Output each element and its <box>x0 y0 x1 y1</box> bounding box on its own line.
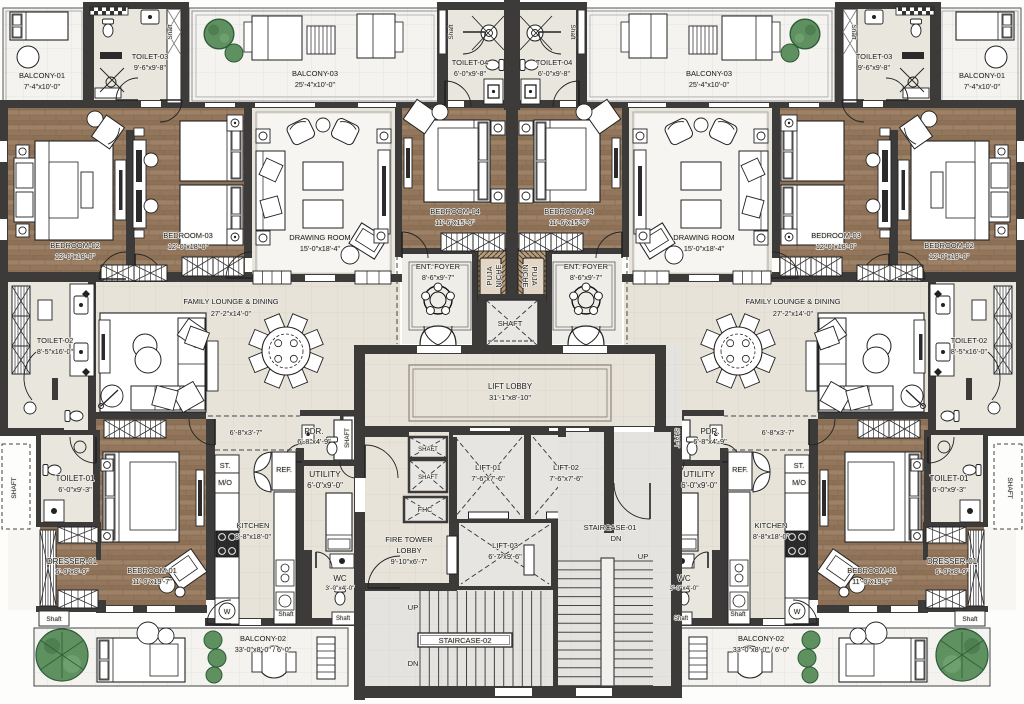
svg-text:Shaft: Shaft <box>278 611 293 618</box>
svg-text:BEDROOM-03: BEDROOM-03 <box>811 231 861 240</box>
svg-text:8'-8"x18'-0": 8'-8"x18'-0" <box>753 532 790 541</box>
svg-text:6'-8"x3'-7": 6'-8"x3'-7" <box>230 428 263 437</box>
svg-text:KITCHEN: KITCHEN <box>755 521 788 530</box>
svg-text:LIFT-03: LIFT-03 <box>492 541 518 550</box>
svg-text:DRESSER-01: DRESSER-01 <box>47 557 98 566</box>
svg-text:SHAFT: SHAFT <box>418 447 438 453</box>
svg-text:BALCONY-03: BALCONY-03 <box>292 69 338 78</box>
svg-text:ENT. FOYER: ENT. FOYER <box>416 262 461 271</box>
svg-text:DRESSER-01: DRESSER-01 <box>927 557 978 566</box>
svg-text:33'-0"x8'-0" / 6'-0": 33'-0"x8'-0" / 6'-0" <box>235 645 292 654</box>
svg-text:STAIRCASE-01: STAIRCASE-01 <box>584 523 637 532</box>
svg-text:11'-6"x15'-0": 11'-6"x15'-0" <box>549 218 589 227</box>
svg-text:UTILITY: UTILITY <box>309 469 341 479</box>
svg-text:Shaft: Shaft <box>962 616 977 623</box>
svg-text:BEDROOM-01: BEDROOM-01 <box>847 566 897 575</box>
svg-text:FAMILY LOUNGE & DINING: FAMILY LOUNGE & DINING <box>745 297 840 306</box>
svg-text:TOILET-04: TOILET-04 <box>452 58 489 67</box>
svg-text:9'-6"x9'-8": 9'-6"x9'-8" <box>134 63 167 72</box>
svg-text:TOILET-03: TOILET-03 <box>856 52 893 61</box>
svg-text:8'-8"x18'-0": 8'-8"x18'-0" <box>235 532 272 541</box>
svg-text:STAIRCASE-02: STAIRCASE-02 <box>439 636 492 645</box>
svg-text:25'-4"x10'-0": 25'-4"x10'-0" <box>689 80 730 89</box>
svg-text:SHAFT: SHAFT <box>11 477 18 498</box>
svg-text:11'-6"x15'-0": 11'-6"x15'-0" <box>435 218 475 227</box>
svg-text:WC: WC <box>333 574 347 583</box>
svg-text:LIFT-01: LIFT-01 <box>475 463 501 472</box>
svg-text:TOILET-02: TOILET-02 <box>951 336 988 345</box>
svg-text:DRAWING ROOM: DRAWING ROOM <box>673 233 734 242</box>
svg-text:6'-8"x4'-9": 6'-8"x4'-9" <box>297 437 331 446</box>
svg-text:6'-0"x9'-0": 6'-0"x9'-0" <box>307 481 343 490</box>
svg-text:FAMILY LOUNGE & DINING: FAMILY LOUNGE & DINING <box>183 297 278 306</box>
svg-text:8'-5"x16'-0": 8'-5"x16'-0" <box>37 347 74 356</box>
svg-text:NICHE: NICHE <box>521 264 530 287</box>
svg-text:SHAFT: SHAFT <box>1006 477 1013 498</box>
svg-text:6'-8"x4'-9": 6'-8"x4'-9" <box>693 437 727 446</box>
svg-text:25'-4"x10'-0": 25'-4"x10'-0" <box>295 80 336 89</box>
svg-text:W: W <box>224 609 231 616</box>
svg-text:3'-0"x4'-0": 3'-0"x4'-0" <box>669 585 699 592</box>
svg-text:SHAFT: SHAFT <box>345 428 351 448</box>
svg-text:BEDROOM-02: BEDROOM-02 <box>924 241 974 250</box>
svg-text:PUJA: PUJA <box>485 266 494 285</box>
svg-text:UP: UP <box>408 603 418 612</box>
svg-text:UTILITY: UTILITY <box>683 469 715 479</box>
svg-text:LIFT-02: LIFT-02 <box>553 463 579 472</box>
svg-text:3'-0"x4'-0": 3'-0"x4'-0" <box>325 585 355 592</box>
svg-text:ST.: ST. <box>220 461 231 470</box>
svg-text:12'-0"x18'-0": 12'-0"x18'-0" <box>929 252 970 261</box>
svg-text:BEDROOM-04: BEDROOM-04 <box>430 207 480 216</box>
svg-text:REF.: REF. <box>732 465 748 474</box>
svg-text:Shaft: Shaft <box>448 24 455 39</box>
svg-text:BEDROOM-01: BEDROOM-01 <box>127 566 177 575</box>
svg-text:7'-4"x10'-0": 7'-4"x10'-0" <box>964 82 1001 91</box>
svg-text:KITCHEN: KITCHEN <box>237 521 270 530</box>
svg-text:11'-0"x19'-7": 11'-0"x19'-7" <box>132 577 172 586</box>
svg-text:Shaft: Shaft <box>674 616 688 622</box>
svg-text:Shaft: Shaft <box>336 616 350 622</box>
svg-text:8'-6"x9'-7": 8'-6"x9'-7" <box>570 273 603 282</box>
svg-text:7'-4"x10'-0": 7'-4"x10'-0" <box>24 82 61 91</box>
svg-text:6'-8"x3'-7": 6'-8"x3'-7" <box>762 428 795 437</box>
svg-text:ST.: ST. <box>794 461 805 470</box>
svg-text:DRAWING ROOM: DRAWING ROOM <box>289 233 350 242</box>
svg-text:11'-0"x19'-7": 11'-0"x19'-7" <box>852 577 892 586</box>
svg-text:BALCONY-03: BALCONY-03 <box>686 69 732 78</box>
svg-text:6'-0"x9'-3": 6'-0"x9'-3" <box>932 485 966 494</box>
svg-text:27'-2"x14'-0": 27'-2"x14'-0" <box>773 309 814 318</box>
svg-text:LIFT LOBBY: LIFT LOBBY <box>488 382 533 391</box>
svg-text:6'-0"x8'-0": 6'-0"x8'-0" <box>935 567 969 576</box>
svg-text:9'-10"x6'-7": 9'-10"x6'-7" <box>391 557 428 566</box>
svg-text:SHAFT: SHAFT <box>673 428 679 448</box>
svg-text:SHAFT: SHAFT <box>498 319 523 328</box>
svg-text:WC: WC <box>677 574 691 583</box>
svg-text:BALCONY-01: BALCONY-01 <box>959 71 1005 80</box>
svg-text:7'-6"x7'-6": 7'-6"x7'-6" <box>471 474 505 483</box>
svg-text:BALCONY-02: BALCONY-02 <box>738 634 784 643</box>
svg-text:M/O: M/O <box>792 478 806 487</box>
svg-text:BEDROOM-02: BEDROOM-02 <box>50 241 100 250</box>
svg-text:Shaft: Shaft <box>730 611 745 618</box>
svg-text:FHC: FHC <box>418 507 432 514</box>
svg-text:8'-5"x16'-0": 8'-5"x16'-0" <box>951 347 988 356</box>
svg-text:BALCONY-02: BALCONY-02 <box>240 634 286 643</box>
svg-text:UP: UP <box>638 552 648 561</box>
svg-text:Shaft: Shaft <box>850 24 857 39</box>
svg-text:27'-2"x14'-0": 27'-2"x14'-0" <box>211 309 252 318</box>
svg-text:BEDROOM-03: BEDROOM-03 <box>163 231 213 240</box>
svg-text:9'-6"x9'-8": 9'-6"x9'-8" <box>858 63 891 72</box>
svg-text:12'-0"x18'-0": 12'-0"x18'-0" <box>168 242 209 251</box>
svg-text:15'-0"x18'-4": 15'-0"x18'-4" <box>300 244 341 253</box>
svg-text:6'-0"x9'-3": 6'-0"x9'-3" <box>58 485 92 494</box>
svg-text:8'-6"x9'-7": 8'-6"x9'-7" <box>422 273 455 282</box>
svg-text:BALCONY-01: BALCONY-01 <box>19 71 65 80</box>
svg-text:LOBBY: LOBBY <box>396 546 421 555</box>
svg-text:TOILET-01: TOILET-01 <box>56 474 96 483</box>
svg-text:TOILET-04: TOILET-04 <box>536 58 573 67</box>
svg-text:Shaft: Shaft <box>46 616 61 623</box>
svg-text:BEDROOM-04: BEDROOM-04 <box>544 207 594 216</box>
svg-text:DN: DN <box>611 534 622 543</box>
svg-text:M/O: M/O <box>218 478 232 487</box>
svg-text:15'-0"x18'-4": 15'-0"x18'-4" <box>684 244 725 253</box>
svg-text:31'-1"x8'-10": 31'-1"x8'-10" <box>489 393 531 402</box>
svg-text:TOILET-02: TOILET-02 <box>37 336 74 345</box>
svg-text:SHAFT: SHAFT <box>418 475 438 481</box>
svg-text:PDR.: PDR. <box>700 427 719 436</box>
svg-text:FIRE TOWER: FIRE TOWER <box>385 535 433 544</box>
svg-text:6'-0"x9'-0": 6'-0"x9'-0" <box>681 481 717 490</box>
svg-text:PUJA: PUJA <box>530 266 539 285</box>
svg-text:DN: DN <box>408 659 419 668</box>
svg-text:Shaft: Shaft <box>167 24 174 39</box>
svg-text:PDR.: PDR. <box>304 427 323 436</box>
svg-text:6'-0"x8'-0": 6'-0"x8'-0" <box>55 567 89 576</box>
svg-text:TOILET-03: TOILET-03 <box>132 52 169 61</box>
svg-text:NICHE: NICHE <box>494 264 503 287</box>
svg-text:6'-7"x9'-6": 6'-7"x9'-6" <box>488 552 522 561</box>
svg-text:REF.: REF. <box>276 465 292 474</box>
svg-text:ENT. FOYER: ENT. FOYER <box>564 262 609 271</box>
svg-text:6'-0"x9'-8": 6'-0"x9'-8" <box>538 69 571 78</box>
svg-text:7'-6"x7'-6": 7'-6"x7'-6" <box>549 474 583 483</box>
svg-text:12'-0"x18'-0": 12'-0"x18'-0" <box>816 242 857 251</box>
svg-text:Shaft: Shaft <box>569 24 576 39</box>
svg-text:12'-0"x18'-0": 12'-0"x18'-0" <box>55 252 96 261</box>
svg-text:TOILET-01: TOILET-01 <box>930 474 970 483</box>
svg-text:6'-0"x9'-8": 6'-0"x9'-8" <box>454 69 487 78</box>
svg-text:33'-0"x8'-0" / 6'-0": 33'-0"x8'-0" / 6'-0" <box>733 645 790 654</box>
